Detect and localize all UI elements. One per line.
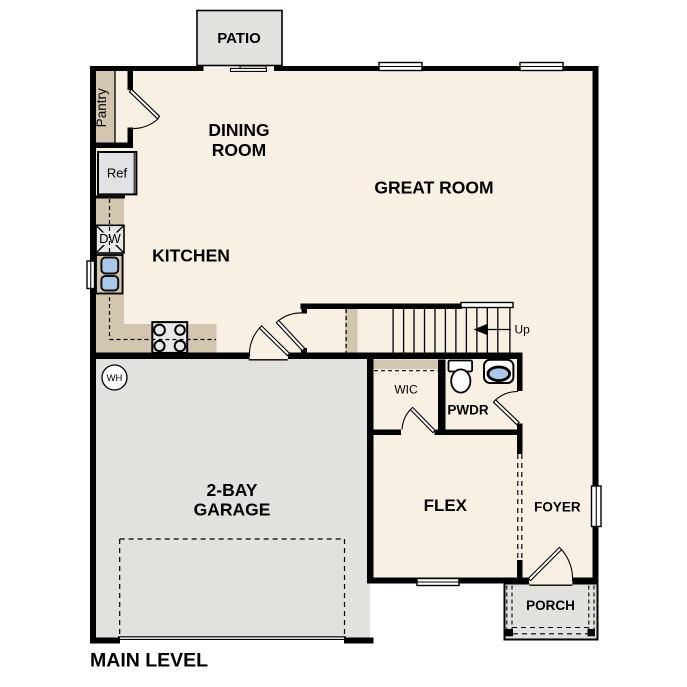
svg-text:WH: WH (107, 373, 123, 384)
svg-text:FOYER: FOYER (534, 499, 581, 514)
svg-text:GARAGE: GARAGE (194, 499, 271, 519)
svg-text:GREAT ROOM: GREAT ROOM (374, 177, 493, 197)
svg-text:FLEX: FLEX (424, 496, 468, 515)
svg-text:Up: Up (515, 323, 531, 337)
svg-text:DW: DW (99, 231, 121, 246)
svg-text:PORCH: PORCH (526, 598, 575, 613)
svg-text:2-BAY: 2-BAY (207, 480, 258, 500)
svg-text:PWDR: PWDR (447, 402, 488, 417)
svg-text:ROOM: ROOM (212, 140, 266, 160)
svg-text:KITCHEN: KITCHEN (152, 246, 230, 266)
svg-text:MAIN LEVEL: MAIN LEVEL (90, 650, 208, 672)
svg-text:Ref: Ref (107, 165, 128, 180)
svg-text:Pantry: Pantry (94, 88, 109, 127)
svg-text:WIC: WIC (394, 382, 418, 396)
svg-text:DINING: DINING (208, 120, 269, 140)
svg-text:PATIO: PATIO (217, 30, 261, 47)
